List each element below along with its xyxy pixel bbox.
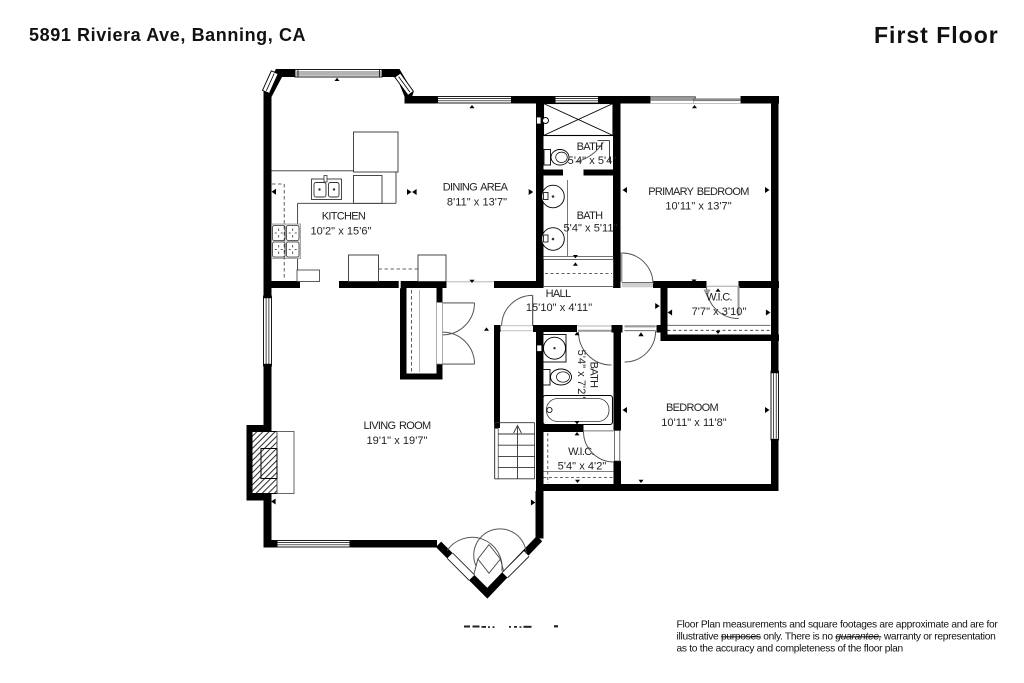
svg-text:BATH: BATH — [577, 141, 603, 153]
svg-text:7'7" x 3'10": 7'7" x 3'10" — [692, 306, 747, 318]
svg-text:W.I.C.: W.I.C. — [706, 292, 732, 304]
svg-text:10'11" x 11'8": 10'11" x 11'8" — [661, 417, 727, 429]
svg-text:LIVING ROOM: LIVING ROOM — [364, 420, 431, 432]
svg-text:BEDROOM: BEDROOM — [666, 402, 718, 414]
svg-text:19'1" x 19'7": 19'1" x 19'7" — [367, 435, 428, 447]
svg-text:15'10" x 4'11": 15'10" x 4'11" — [526, 302, 592, 314]
svg-text:KITCHEN: KITCHEN — [322, 211, 366, 223]
svg-text:BATH: BATH — [588, 362, 600, 388]
svg-text:5'4" x 5'4": 5'4" x 5'4" — [568, 155, 617, 167]
svg-text:8'11" x 13'7": 8'11" x 13'7" — [447, 197, 507, 209]
svg-text:as to the accuracy and complet: as to the accuracy and completeness of t… — [677, 644, 903, 655]
svg-text:10'11" x 13'7": 10'11" x 13'7" — [665, 201, 731, 213]
svg-text:W.I.C.: W.I.C. — [568, 446, 594, 458]
svg-text:PRIMARY BEDROOM: PRIMARY BEDROOM — [648, 186, 749, 198]
svg-text:illustrative purposes only. Th: illustrative purposes only. There is no … — [677, 632, 996, 643]
svg-text:DINING AREA: DINING AREA — [443, 182, 509, 194]
svg-text:Floor Plan measurements and sq: Floor Plan measurements and square foota… — [677, 620, 999, 631]
svg-text:5891 Riviera Ave, Banning, CA: 5891 Riviera Ave, Banning, CA — [29, 25, 306, 45]
svg-text:First Floor: First Floor — [874, 22, 999, 48]
svg-text:BATH: BATH — [577, 210, 603, 222]
svg-text:HALL: HALL — [546, 288, 571, 300]
svg-text:5'4" x 7'2": 5'4" x 7'2" — [575, 350, 587, 399]
svg-text:10'2" x 15'6": 10'2" x 15'6" — [311, 226, 372, 238]
svg-text:5'4" x 4'2": 5'4" x 4'2" — [558, 461, 607, 473]
svg-text:5'4" x 5'11": 5'4" x 5'11" — [564, 223, 618, 235]
